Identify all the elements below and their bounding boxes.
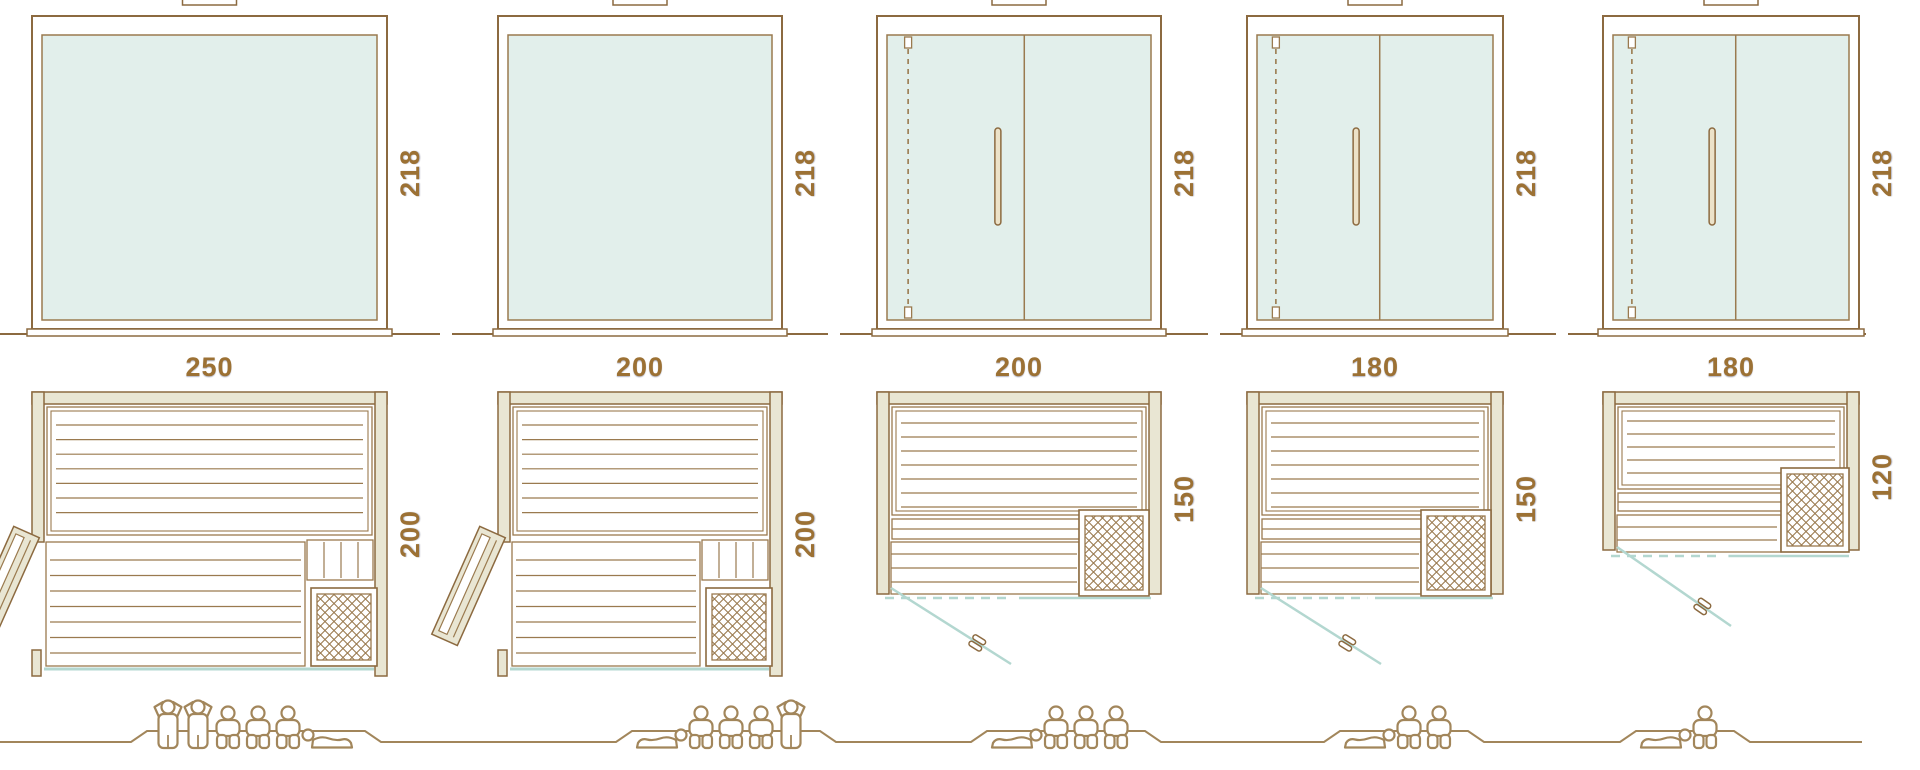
elevation-view-sauna-4: [1235, 0, 1515, 342]
heater-icon: [311, 588, 377, 666]
glass-panel: [42, 35, 377, 320]
floorplan-view-sauna-4: [1207, 392, 1543, 690]
sauna-size-diagram: 2502182002002182002002181501802181501802…: [0, 0, 1920, 770]
glass-panel: [1257, 35, 1493, 320]
glass-panel: [508, 35, 772, 320]
roof-vent-icon: [183, 0, 237, 5]
person-lying-icon: [1345, 730, 1395, 748]
roof-vent-icon: [1704, 0, 1758, 5]
glass-door-swing-line: [1261, 588, 1381, 664]
depth-dimension-label: 200: [790, 479, 820, 589]
depth-dimension-label: 200: [395, 479, 425, 589]
floorplan-view-sauna-5: [1563, 392, 1899, 647]
height-dimension-label: 218: [790, 118, 820, 228]
elevation-view-sauna-1: [20, 0, 399, 342]
roof-vent-icon: [992, 0, 1046, 5]
door-handle-icon: [1709, 128, 1715, 225]
width-dimension-label: 200: [877, 352, 1161, 382]
height-dimension-label: 218: [395, 118, 425, 228]
depth-dimension-label: 150: [1169, 444, 1199, 554]
person-lying-icon: [1641, 730, 1691, 748]
door-hinge-icon: [905, 37, 912, 48]
person-lying-icon: [992, 730, 1042, 748]
elevation-view-sauna-3: [865, 0, 1173, 342]
floorplan-view-sauna-1: [0, 392, 427, 761]
heater-icon: [1079, 510, 1149, 596]
backrest-slats: [702, 540, 768, 580]
backrest-slats: [307, 540, 373, 580]
width-dimension-label: 250: [32, 352, 387, 382]
base-sill: [493, 329, 787, 336]
door-hinge-icon: [1628, 307, 1635, 318]
height-dimension-label: 218: [1867, 118, 1897, 228]
elevation-view-sauna-2: [486, 0, 794, 342]
door-hinge-icon: [905, 307, 912, 318]
width-dimension-label: 200: [498, 352, 782, 382]
base-sill: [872, 329, 1166, 336]
width-dimension-label: 180: [1603, 352, 1859, 382]
person-sitting-icon: [1045, 707, 1068, 749]
door-handle-icon: [995, 128, 1001, 225]
base-sill: [27, 329, 392, 336]
glass-door-swing-line: [1617, 547, 1731, 626]
heater-icon: [1781, 468, 1849, 552]
base-sill: [1598, 329, 1864, 336]
wood-door-icon: [0, 526, 39, 645]
width-dimension-label: 180: [1247, 352, 1503, 382]
depth-dimension-label: 120: [1867, 422, 1897, 532]
glass-door-swing-line: [891, 588, 1011, 664]
door-handle-icon: [1353, 128, 1359, 225]
door-hinge-icon: [1628, 37, 1635, 48]
door-hinge-icon: [1272, 307, 1279, 318]
glass-panel: [887, 35, 1151, 320]
glass-panel: [1613, 35, 1849, 320]
person-sitting-icon: [1075, 707, 1098, 749]
base-sill: [1242, 329, 1508, 336]
person-sitting-icon: [1105, 707, 1128, 749]
floorplan-view-sauna-3: [837, 392, 1201, 690]
floorplan-view-sauna-2: [458, 392, 822, 761]
roof-vent-icon: [1348, 0, 1402, 5]
depth-dimension-label: 150: [1511, 444, 1541, 554]
person-sitting-icon: [1398, 707, 1421, 749]
door-hinge-icon: [1272, 37, 1279, 48]
person-sitting-icon: [1428, 707, 1451, 749]
elevation-view-sauna-5: [1591, 0, 1871, 342]
roof-vent-icon: [613, 0, 667, 5]
height-dimension-label: 218: [1511, 118, 1541, 228]
heater-icon: [1421, 510, 1491, 596]
person-sitting-icon: [1694, 707, 1717, 749]
heater-icon: [706, 588, 772, 666]
height-dimension-label: 218: [1169, 118, 1199, 228]
wood-door-icon: [432, 526, 506, 645]
